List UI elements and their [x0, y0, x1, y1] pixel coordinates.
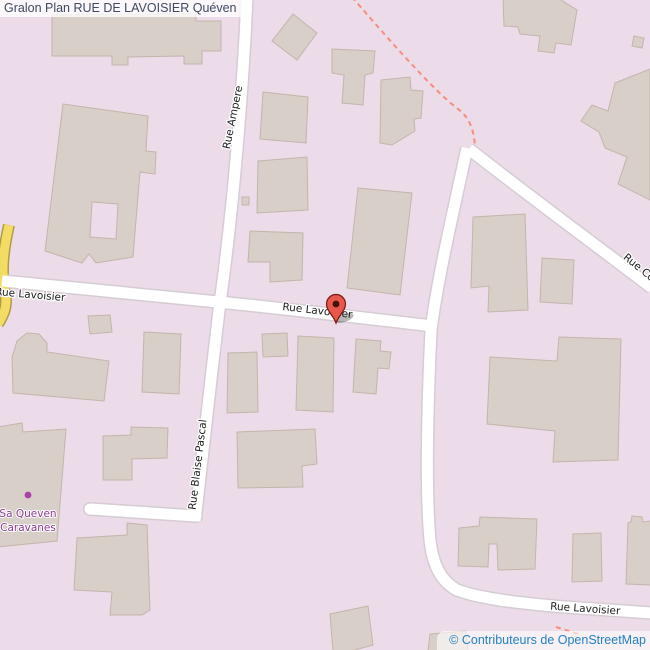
- building: [540, 258, 574, 304]
- building: [353, 339, 391, 394]
- building: [12, 333, 109, 401]
- building: [272, 14, 317, 60]
- building: [248, 231, 303, 282]
- building: [262, 333, 288, 357]
- road-cul-de-sac: [90, 509, 196, 516]
- building: [260, 92, 308, 143]
- building: [103, 427, 168, 480]
- poi-dot: [25, 492, 32, 499]
- building: [347, 188, 412, 295]
- building: [227, 352, 258, 413]
- building: [257, 157, 308, 213]
- building: [88, 315, 112, 334]
- building: [330, 606, 373, 650]
- building-courtyard: [90, 202, 118, 239]
- building: [296, 336, 334, 412]
- building: [632, 36, 644, 48]
- map-canvas: Rue Ampere Rue Blaise Pascal Rue Lavoisi…: [0, 0, 650, 650]
- building: [380, 77, 423, 145]
- pin-center-dot: [333, 301, 340, 308]
- building: [471, 214, 528, 312]
- building: [503, 0, 577, 53]
- building: [45, 104, 156, 263]
- building: [572, 533, 602, 582]
- street-label-rue-lavoisier-south: Rue Lavoisier: [550, 601, 622, 618]
- building: [142, 332, 181, 394]
- building: [458, 517, 537, 570]
- building: [487, 337, 621, 462]
- osm-attribution-link[interactable]: © Contributeurs de OpenStreetMap: [437, 631, 650, 650]
- buildings-layer: [0, 0, 650, 650]
- building: [332, 49, 375, 105]
- poi-label-line1: Sa Queven: [0, 508, 57, 520]
- building: [74, 523, 150, 615]
- building: [581, 69, 650, 200]
- map-viewport[interactable]: Rue Ampere Rue Blaise Pascal Rue Lavoisi…: [0, 0, 650, 650]
- building: [237, 429, 317, 488]
- page-title: Gralon Plan RUE DE LAVOISIER Quéven: [0, 0, 243, 17]
- building: [242, 197, 249, 205]
- building: [52, 13, 221, 65]
- poi-label-line2: Caravanes: [0, 522, 56, 534]
- building: [626, 516, 650, 585]
